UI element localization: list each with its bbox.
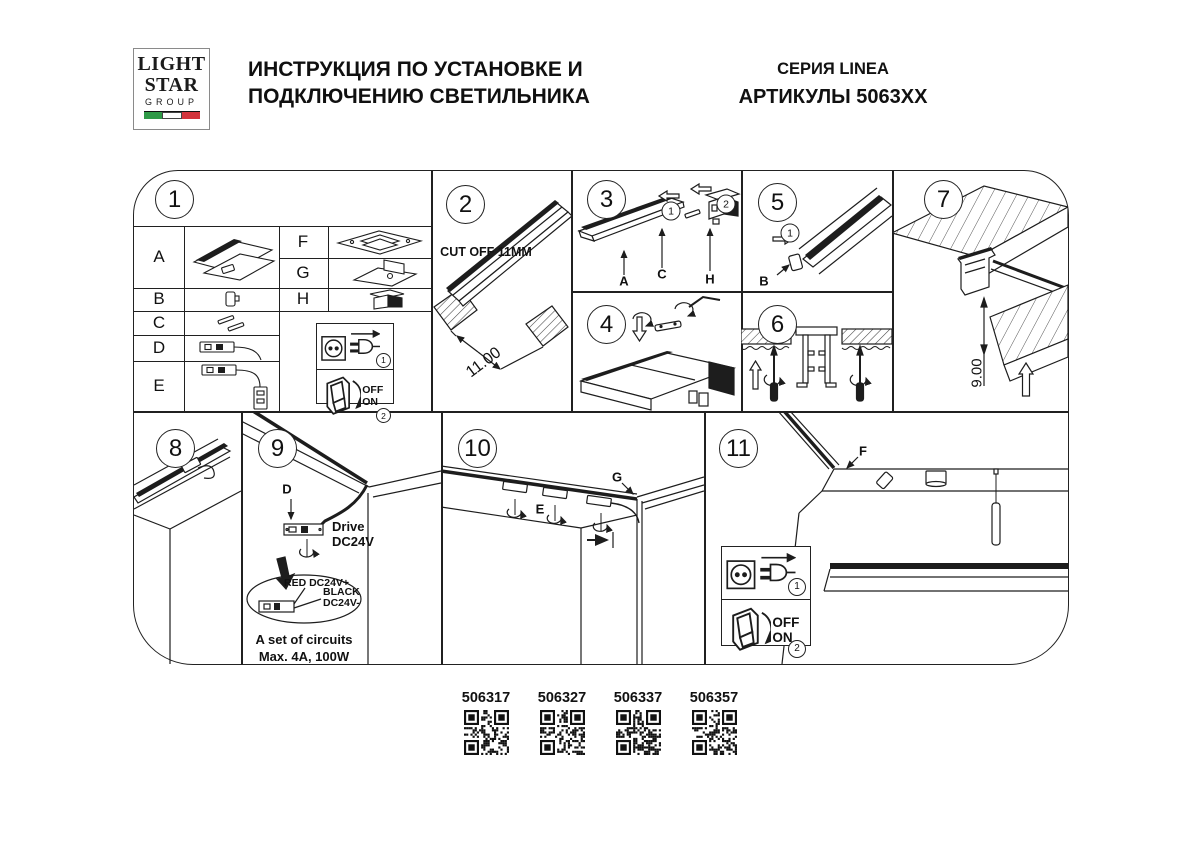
series-block: СЕРИЯ LINEA АРТИКУЛЫ 5063XX [703,60,963,109]
qr-article-4: 506357 [679,690,749,755]
part-a-drawing [184,226,279,288]
panel-3-number: 3 [587,180,626,219]
label-f: F [859,444,867,459]
part-letter-e: E [153,376,164,396]
article-code: 506337 [603,690,673,706]
label-c: C [657,267,666,282]
panel-7-number: 7 [924,180,963,219]
wire-black-label: BLACKDC24V- [323,587,360,609]
label-d: D [282,482,291,497]
label-h: H [705,272,714,287]
page-title: ИНСТРУКЦИЯ ПО УСТАНОВКЕ И ПОДКЛЮЧЕНИЮ СВ… [248,56,590,110]
logo-star: STAR [134,75,209,96]
article-code: 506327 [527,690,597,706]
step-2-badge: 2 [788,640,806,658]
table-line [134,311,431,312]
title-line-2: ПОДКЛЮЧЕНИЮ СВЕТИЛЬНИКА [248,83,590,110]
part-letter-f: F [298,232,308,252]
qr-article-1: 506317 [451,690,521,755]
article-code: 506317 [451,690,521,706]
series-name: СЕРИЯ LINEA [703,60,963,79]
panel-8-number: 8 [156,429,195,468]
power-steps-box: 1 OFFON 2 [316,323,394,404]
qr-code-icon [616,710,661,755]
plug-in-step: 1 [722,547,810,600]
panel-4-number: 4 [587,305,626,344]
label-a: A [619,274,628,289]
switch-on-step: OFFON 2 [722,600,810,661]
power-steps-box: 1 OFFON 2 [721,546,811,646]
panel-5-number: 5 [758,183,797,222]
circuits-note: A set of circuitsMax. 4A, 100W [234,631,374,665]
articles: АРТИКУЛЫ 5063XX [703,86,963,109]
off-on-label: OFFON [362,385,383,409]
label-g: G [612,470,622,485]
article-code: 506357 [679,690,749,706]
part-f-drawing [328,226,431,258]
step-2-badge: 2 [376,408,391,423]
step-badge-1: 1 [781,224,800,243]
logo-group: GROUP [134,97,209,107]
brand-logo: LIGHT STAR GROUP [133,48,210,130]
label-e: E [536,502,545,517]
part-letter-g: G [296,263,309,283]
drive-label: DriveDC24V [332,519,374,549]
title-line-1: ИНСТРУКЦИЯ ПО УСТАНОВКЕ И [248,56,590,83]
part-letter-c: C [153,313,165,333]
step-1-badge: 1 [788,578,806,596]
part-letter-a: A [153,247,164,267]
cut-off-note: CUT OFF 11MM [440,245,532,259]
panel-9-number: 9 [258,429,297,468]
qr-code-icon [692,710,737,755]
panel-6-number: 6 [758,305,797,344]
panel-10-number: 10 [458,429,497,468]
part-b-drawing [184,288,279,311]
part-e-drawing [184,361,279,411]
switch-icon [725,606,771,655]
step-badge-2: 2 [717,195,736,214]
part-h-drawing [328,288,431,311]
part-g-drawing [328,258,431,288]
panel-2-number: 2 [446,185,485,224]
plug-in-step: 1 [317,324,393,370]
panel-11-number: 11 [719,429,758,468]
part-d-drawing [184,335,279,361]
panel-1-number: 1 [155,180,194,219]
step-1-badge: 1 [376,353,391,368]
label-b: B [759,274,768,289]
socket-plug-icon [725,552,796,593]
diagram-board: 1 2 3 4 5 6 7 8 9 10 11 A B C D E F G H [133,170,1069,665]
italian-flag-icon [144,111,200,119]
part-letter-h: H [297,289,309,309]
logo-light: LIGHT [134,54,209,75]
part-letter-d: D [153,338,165,358]
part-c-drawing [184,311,279,335]
qr-code-icon [540,710,585,755]
qr-article-2: 506327 [527,690,597,755]
step-badge-1: 1 [662,202,681,221]
dimension-9mm: 9.00 [969,358,986,387]
table-line [279,226,280,411]
part-letter-b: B [153,289,164,309]
switch-on-step: OFFON 2 [317,370,393,425]
switch-icon [320,375,361,419]
socket-plug-icon [320,329,380,364]
qr-article-3: 506337 [603,690,673,755]
instruction-sheet: LIGHT STAR GROUP ИНСТРУКЦИЯ ПО УСТАНОВКЕ… [0,0,1200,849]
qr-code-icon [464,710,509,755]
